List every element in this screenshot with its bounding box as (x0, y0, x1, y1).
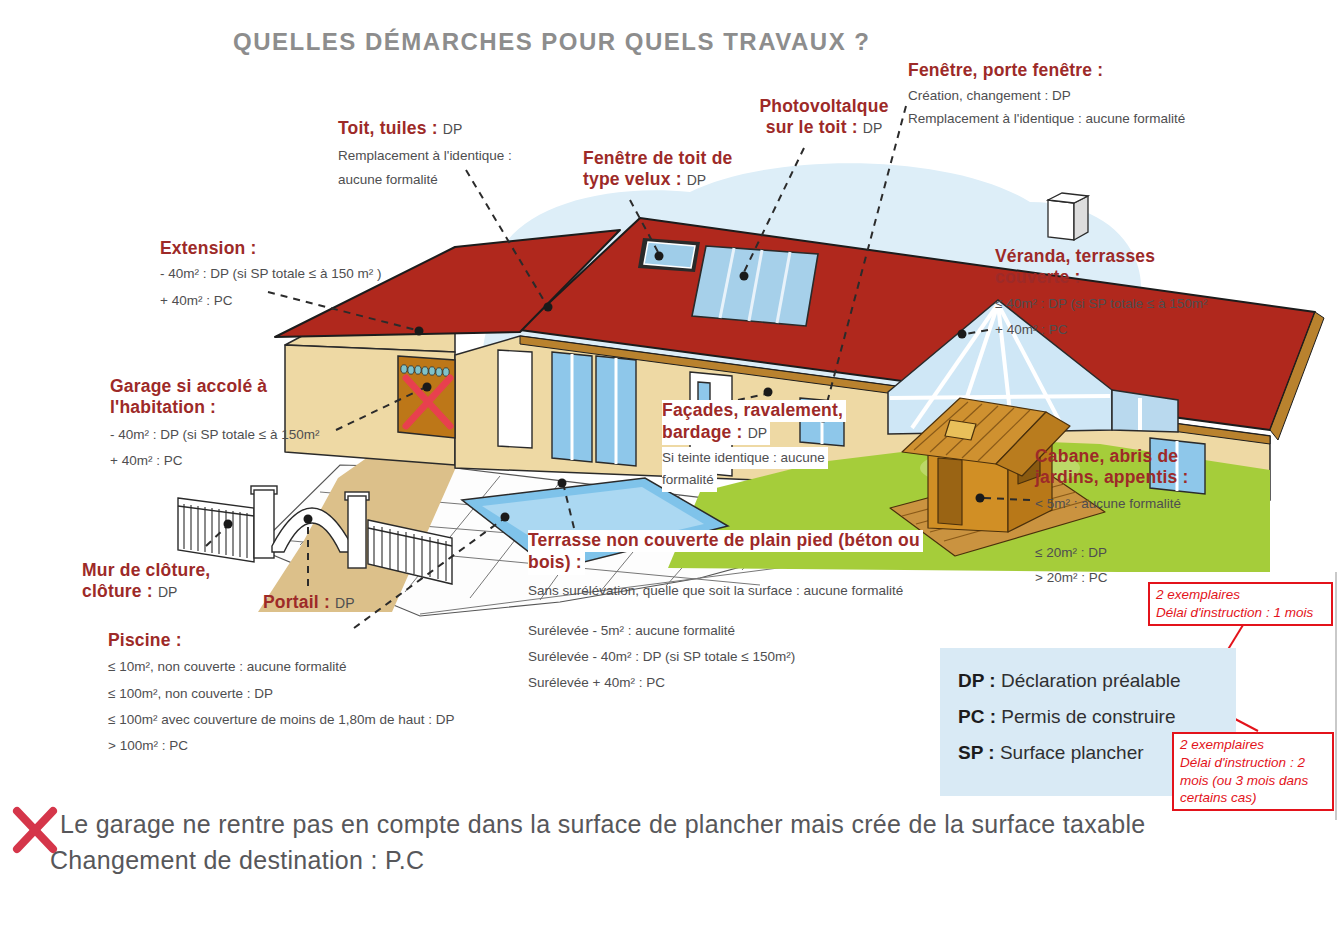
solar-panel (692, 246, 818, 326)
facades-heading: Façades, ravalement, (662, 400, 846, 422)
fenetre-porte-heading: Fenêtre, porte fenêtre : (908, 60, 1103, 80)
photovoltaique-heading: sur le toit : (766, 117, 858, 137)
toit-body-line: aucune formalité (338, 172, 438, 187)
velux-heading: type velux : (583, 169, 682, 189)
facades-heading: bardage : (662, 422, 743, 442)
label-veranda: Véranda, terrasses couverte : ≤ 40m² : D… (995, 246, 1207, 343)
cabane-body-line: < 5m² : aucune formalité (1035, 496, 1181, 511)
toit-body-line: Remplacement à l'identique : (338, 148, 512, 163)
label-mur-cloture: Mur de clôture, clôture : DP (82, 560, 210, 603)
terrasse-body-line: Surélevée - 40m² : DP (si SP totale ≤ 15… (528, 649, 795, 664)
terrasse-body-line: Sans surélévation, quelle que soit la su… (528, 583, 903, 598)
fenetre-porte-body-line: Création, changement : DP (908, 88, 1071, 103)
label-velux: Fenêtre de toit de type velux : DP (583, 148, 732, 191)
annotation-line: Délai d'instruction : 1 mois (1156, 605, 1313, 620)
label-extension: Extension : - 40m² : DP (si SP totale ≤ … (160, 238, 381, 314)
legend-abbr: SP : (958, 742, 995, 763)
veranda-heading: couverte : (995, 267, 1081, 287)
pillar (254, 490, 274, 558)
cabane-heading: jardins, appentis : (1035, 467, 1189, 487)
velux-window (638, 238, 700, 272)
annotation-pc-box: 2 exemplaires Délai d'instruction : 2 mo… (1172, 732, 1334, 811)
label-toit-tuiles: Toit, tuiles : DP Remplacement à l'ident… (338, 118, 512, 192)
toit-heading: Toit, tuiles : (338, 118, 438, 138)
portail-heading: Portail : (263, 592, 330, 612)
facades-value: DP (748, 425, 767, 441)
garage-heading: Garage si accolé à (110, 376, 267, 396)
label-portail: Portail : DP (263, 592, 354, 613)
footer-line1: Le garage ne rentre pas en compte dans l… (60, 810, 1145, 839)
toit-value: DP (443, 121, 462, 137)
piscine-heading: Piscine : (108, 630, 182, 650)
annotation-line: 2 exemplaires (1156, 587, 1240, 602)
chimney (1048, 193, 1088, 240)
legend-abbr: PC : (958, 706, 996, 727)
legend-abbr: DP : (958, 670, 996, 691)
extension-body-line: + 40m² : PC (160, 293, 232, 308)
velux-heading: Fenêtre de toit de (583, 148, 732, 168)
photovoltaique-value: DP (863, 120, 882, 136)
label-facades: Façades, ravalement, bardage : DP Si tei… (662, 400, 846, 492)
label-garage: Garage si accolé à l'habitation : - 40m²… (110, 376, 320, 474)
piscine-body-line: ≤ 100m² avec couverture de moins de 1,80… (108, 712, 455, 727)
facades-body-line: Si teinte identique : aucune (662, 447, 828, 470)
veranda-heading: Véranda, terrasses (995, 246, 1155, 266)
legend-row-pc: PC : Permis de construire (958, 706, 1218, 728)
terrasse-body-line: Surélevée - 5m² : aucune formalité (528, 623, 735, 638)
veranda-body-line: + 40m² : PC (995, 322, 1067, 337)
mur-heading: clôture : (82, 581, 153, 601)
garage-body-line: - 40m² : DP (si SP totale ≤ à 150m² (110, 427, 320, 442)
page-edge-line (1335, 572, 1337, 820)
velux-value: DP (687, 172, 706, 188)
legend-row-dp: DP : Déclaration préalable (958, 670, 1218, 692)
garage-body-line: + 40m² : PC (110, 453, 182, 468)
piscine-body-line: > 100m² : PC (108, 738, 188, 753)
legend-text: Déclaration préalable (1001, 670, 1181, 691)
legend-text: Surface plancher (1000, 742, 1144, 763)
annotation-line: 2 exemplaires (1180, 737, 1264, 752)
page-title: QUELLES DÉMARCHES POUR QUELS TRAVAUX ? (233, 28, 870, 56)
piscine-body-line: ≤ 10m², non couverte : aucune formalité (108, 659, 347, 674)
facades-body-line: formalité (662, 469, 717, 492)
extension-body-line: - 40m² : DP (si SP totale ≤ à 150 m² ) (160, 266, 381, 281)
terrasse-heading: bois) : (528, 552, 585, 574)
infographic-page: QUELLES DÉMARCHES POUR QUELS TRAVAUX ? T… (0, 0, 1341, 934)
fenetre-porte-body-line: Remplacement à l'identique : aucune form… (908, 111, 1185, 126)
terrasse-heading: Terrasse non couverte de plain pied (bét… (528, 530, 923, 552)
terrasse-body-line: Surélevée + 40m² : PC (528, 675, 665, 690)
cabane-body-line: ≤ 20m² : DP (1035, 545, 1107, 560)
label-terrasse: Terrasse non couverte de plain pied (bét… (528, 530, 923, 695)
legend-text: Permis de construire (1001, 706, 1175, 727)
annotation-line: Délai d'instruction : 2 mois (ou 3 mois … (1180, 755, 1308, 806)
mur-heading: Mur de clôture, (82, 560, 210, 580)
annotation-dp-box: 2 exemplaires Délai d'instruction : 1 mo… (1148, 582, 1333, 626)
garage-heading: l'habitation : (110, 397, 216, 417)
label-cabane: Cabane, abris de jardins, appentis : < 5… (1035, 446, 1189, 591)
label-piscine: Piscine : ≤ 10m², non couverte : aucune … (108, 630, 455, 760)
veranda-body-line: ≤ 40m² : DP (si SP totale ≤ à 150m² (995, 296, 1207, 311)
footer-line2: Changement de destination : P.C (50, 846, 424, 875)
cabane-body-line: > 20m² : PC (1035, 570, 1107, 585)
label-fenetre-porte: Fenêtre, porte fenêtre : Création, chang… (908, 60, 1185, 130)
piscine-body-line: ≤ 100m², non couverte : DP (108, 686, 273, 701)
label-photovoltaique: Photovoltalque sur le toit : DP (738, 96, 910, 139)
cabane-heading: Cabane, abris de (1035, 446, 1178, 466)
portail-value: DP (335, 595, 354, 611)
mur-value: DP (158, 584, 177, 600)
extension-heading: Extension : (160, 238, 257, 258)
photovoltaique-heading: Photovoltalque (759, 96, 888, 116)
